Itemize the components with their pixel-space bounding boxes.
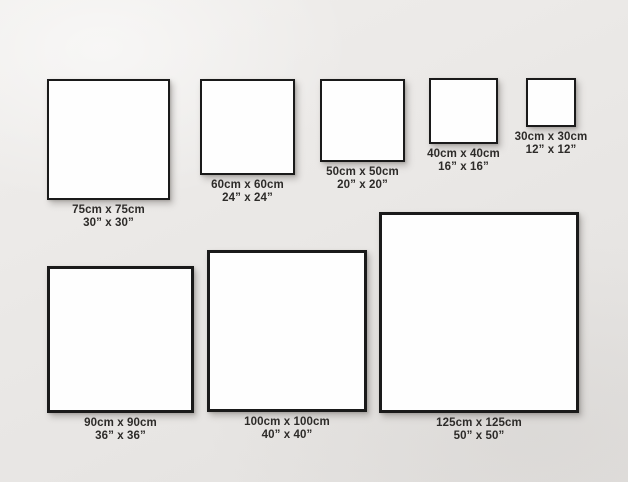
size-label-cm: 60cm x 60cm <box>211 179 284 192</box>
size-label-40cm: 40cm x 40cm 16” x 16” <box>427 148 500 174</box>
size-label-inch: 40” x 40” <box>244 429 330 442</box>
size-label-cm: 90cm x 90cm <box>84 417 157 430</box>
frame-60cm: 60cm x 60cm 24” x 24” <box>200 79 295 175</box>
size-label-cm: 75cm x 75cm <box>72 204 145 217</box>
size-label-inch: 30” x 30” <box>72 217 145 230</box>
frame-100cm: 100cm x 100cm 40” x 40” <box>207 250 367 412</box>
frame-90cm: 90cm x 90cm 36” x 36” <box>47 266 194 413</box>
canvas-square-90cm <box>47 266 194 413</box>
canvas-square-125cm <box>379 212 579 413</box>
size-label-inch: 16” x 16” <box>427 161 500 174</box>
size-label-cm: 50cm x 50cm <box>326 166 399 179</box>
size-label-inch: 20” x 20” <box>326 179 399 192</box>
size-label-60cm: 60cm x 60cm 24” x 24” <box>211 179 284 205</box>
size-label-90cm: 90cm x 90cm 36” x 36” <box>84 417 157 443</box>
size-label-cm: 40cm x 40cm <box>427 148 500 161</box>
canvas-square-60cm <box>200 79 295 175</box>
canvas-square-100cm <box>207 250 367 412</box>
frame-30cm: 30cm x 30cm 12” x 12” <box>526 78 576 127</box>
size-label-cm: 30cm x 30cm <box>515 131 588 144</box>
canvas-square-50cm <box>320 79 405 162</box>
size-label-cm: 125cm x 125cm <box>436 417 522 430</box>
canvas-square-30cm <box>526 78 576 127</box>
size-label-inch: 50” x 50” <box>436 430 522 443</box>
frame-50cm: 50cm x 50cm 20” x 20” <box>320 79 405 162</box>
size-label-100cm: 100cm x 100cm 40” x 40” <box>244 416 330 442</box>
size-label-cm: 100cm x 100cm <box>244 416 330 429</box>
frame-75cm: 75cm x 75cm 30” x 30” <box>47 79 170 200</box>
size-label-50cm: 50cm x 50cm 20” x 20” <box>326 166 399 192</box>
canvas-square-75cm <box>47 79 170 200</box>
frame-40cm: 40cm x 40cm 16” x 16” <box>429 78 498 144</box>
size-comparison-wall: 75cm x 75cm 30” x 30” 60cm x 60cm 24” x … <box>0 0 628 482</box>
size-label-inch: 36” x 36” <box>84 430 157 443</box>
size-label-125cm: 125cm x 125cm 50” x 50” <box>436 417 522 443</box>
size-label-inch: 24” x 24” <box>211 192 284 205</box>
canvas-square-40cm <box>429 78 498 144</box>
size-label-inch: 12” x 12” <box>515 144 588 157</box>
frame-125cm: 125cm x 125cm 50” x 50” <box>379 212 579 413</box>
size-label-75cm: 75cm x 75cm 30” x 30” <box>72 204 145 230</box>
size-label-30cm: 30cm x 30cm 12” x 12” <box>515 131 588 157</box>
